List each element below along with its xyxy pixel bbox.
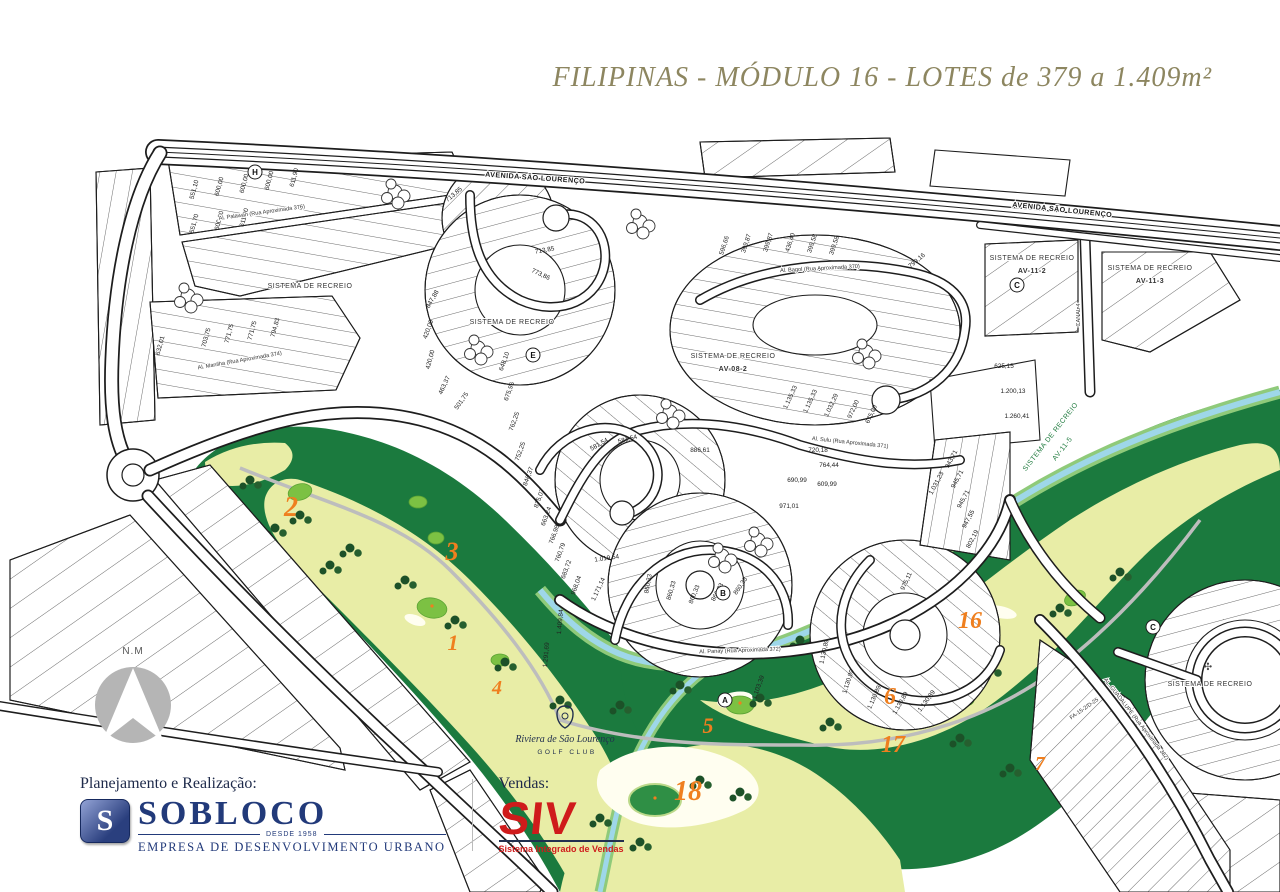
golf-hole-number: 7	[1035, 753, 1046, 775]
lot-area-label: 766,98	[548, 524, 561, 545]
lot-area-label: 752,25	[514, 441, 527, 462]
golf-club-name: Riviera de São Lourenço	[514, 734, 614, 745]
golf-hole-number: 4	[491, 677, 502, 699]
golf-hole-number: 1	[448, 630, 459, 655]
golf-hole-number: 6	[884, 684, 896, 710]
lot-letter: C	[1150, 623, 1156, 632]
lot-area-label: 690,99	[787, 477, 807, 484]
footer-divider	[472, 779, 473, 851]
developer-block: Planejamento e Realização: S SOBLOCO DES…	[80, 775, 446, 855]
site-plan-map: 551,10 600,00 600,00 600,00 611,90 713,8…	[0, 0, 1280, 892]
lot-area-label: 1.260,41	[1005, 413, 1030, 420]
golf-hole-number: 17	[881, 732, 906, 758]
planning-label: Planejamento e Realização:	[80, 775, 446, 793]
lot-area-label: 609,99	[817, 481, 837, 488]
recreation-code: AV-11-5	[1052, 436, 1075, 462]
sobloco-logo: S SOBLOCO DESDE 1958 EMPRESA DE DESENVOL…	[80, 799, 446, 855]
lot-area-label: 420,00	[425, 349, 437, 370]
recreation-code: AV-11-2	[1018, 268, 1046, 275]
lot-area-label: 463,37	[437, 375, 452, 396]
lot-letter: C	[1014, 281, 1020, 290]
recreation-label: SISTEMA DE RECREIO	[691, 353, 776, 360]
lot-area-label: 968,04	[570, 575, 583, 596]
lot-area-label: 971,01	[779, 503, 799, 510]
recreation-label: SISTEMA DE RECREIO	[1168, 681, 1253, 688]
lot-area-label: 625,15	[994, 363, 1014, 370]
golf-hole-number: 18	[674, 776, 702, 807]
golf-hole-number: 3	[445, 537, 459, 566]
golf-hole-number: 2	[283, 492, 298, 523]
sobloco-badge-icon: S	[80, 799, 130, 843]
lot-area-label: 501,75	[453, 391, 470, 411]
lot-area-label: 1.171,14	[590, 576, 607, 602]
compass-label: N.M	[122, 646, 143, 657]
street-label-canal-4: CANAL 4	[1076, 303, 1082, 326]
siv-logo: SIV	[496, 799, 625, 838]
lot-area-label: 886,61	[690, 447, 710, 454]
lot-letter: H	[252, 168, 258, 177]
lot-area-label: 720,18	[808, 447, 828, 454]
lot-area-label: 764,44	[819, 462, 839, 469]
sales-block: Vendas: SIV Sistema Integrado de Vendas	[499, 775, 624, 854]
sobloco-name: SOBLOCO	[138, 799, 446, 830]
recreation-label: SISTEMA DE RECREIO	[990, 255, 1075, 262]
recreation-label: SISTEMA DE RECREIO	[268, 283, 353, 290]
site-plan-page: FILIPINAS - MÓDULO 16 - LOTES de 379 a 1…	[0, 0, 1280, 892]
lot-area-label: 596,66	[718, 235, 731, 256]
lot-letter: B	[720, 589, 726, 598]
sales-label: Vendas:	[499, 775, 624, 793]
golf-hole-number: 16	[958, 608, 982, 634]
lot-area-label: 760,79	[554, 542, 567, 563]
recreation-code: AV-11-3	[1136, 278, 1164, 285]
lot-area-label: 683,72	[560, 559, 573, 580]
recreation-label: SISTEMA DE RECREIO	[1108, 265, 1193, 272]
recreation-icon: ✣	[1204, 662, 1212, 673]
lot-letter: E	[530, 351, 536, 360]
golf-club-subtitle: GOLF CLUB	[537, 749, 596, 756]
lot-area-label: 1.200,13	[1001, 388, 1026, 395]
recreation-label: SISTEMA DE RECREIO	[470, 319, 555, 326]
recreation-code: AV-08-2	[719, 366, 748, 373]
sobloco-since: DESDE 1958	[138, 831, 446, 838]
lot-letter: A	[722, 696, 728, 705]
lot-area-label: 762,25	[508, 411, 521, 432]
golf-hole-number: 5	[703, 713, 714, 738]
footer-branding: Planejamento e Realização: S SOBLOCO DES…	[80, 775, 624, 855]
sobloco-tagline: EMPRESA DE DESENVOLVIMENTO URBANO	[138, 840, 446, 855]
